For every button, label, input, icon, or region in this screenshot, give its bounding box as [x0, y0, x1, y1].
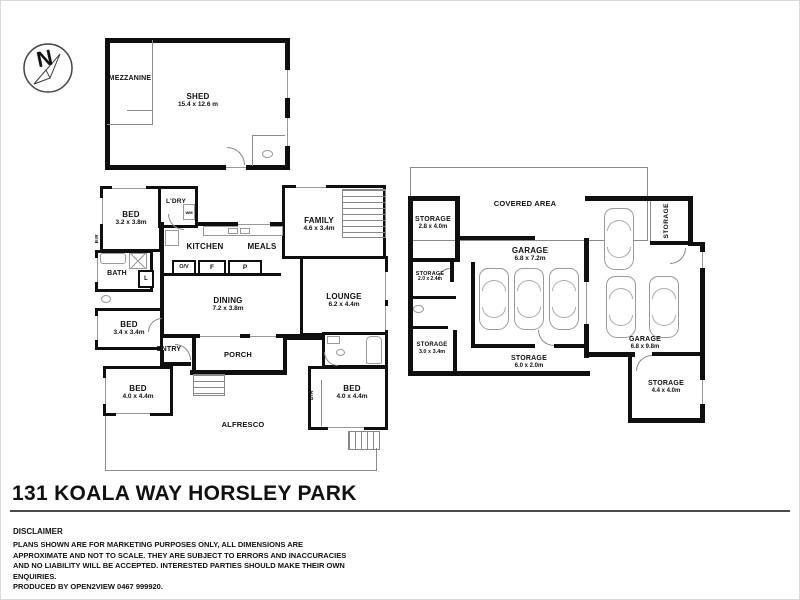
garage-label: GARAGE6.8 x 9.8m	[612, 336, 678, 351]
disclaimer-text: PLANS SHOWN ARE FOR MARKETING PURPOSES O…	[13, 540, 358, 582]
bedroom-label: BED4.0 x 4.4m	[322, 384, 382, 401]
car-icon	[479, 268, 509, 330]
window	[328, 425, 364, 430]
dining-label: DINING7.2 x 3.8m	[188, 296, 268, 313]
window	[383, 272, 388, 300]
toilet-icon	[262, 150, 273, 158]
porch-label: PORCH	[207, 351, 269, 360]
bathtub-icon	[100, 253, 126, 264]
washing-machine-icon: WM	[183, 204, 195, 220]
vanity-icon	[327, 336, 340, 344]
wall-segment	[628, 418, 705, 423]
wall-segment	[163, 362, 191, 366]
wall-segment	[408, 196, 460, 201]
disclaimer-heading: DISCLAIMER	[13, 527, 63, 536]
bedroom-label: BED3.4 x 3.4m	[99, 320, 159, 337]
shower-icon	[129, 253, 147, 269]
door-arc	[670, 248, 686, 264]
alfresco-line	[105, 416, 106, 471]
family-label: FAMILY4.6 x 3.4m	[286, 216, 352, 233]
bedroom-label: BED3.2 x 3.8m	[101, 210, 161, 227]
wall-segment	[471, 262, 475, 348]
alfresco-label: ALFRESCO	[203, 421, 283, 430]
wall-segment	[585, 196, 693, 201]
linen-closet: L	[138, 270, 154, 288]
garage-opening	[584, 282, 589, 324]
storage-label: STORAGE2.0 x 2.4m	[409, 271, 451, 283]
kitchen-label: KITCHEN	[180, 242, 230, 251]
car-icon	[606, 276, 636, 338]
produced-by-text: PRODUCED BY OPEN2VIEW 0467 999920.	[13, 582, 358, 593]
wall-segment	[408, 371, 590, 376]
mezzanine-step-line	[127, 110, 153, 111]
car-icon	[604, 208, 634, 270]
oven-box: O/V	[172, 260, 196, 275]
door-arc	[636, 355, 652, 371]
alfresco-line	[105, 470, 377, 471]
window	[238, 222, 270, 227]
covered-area-label: COVERED AREA	[478, 200, 572, 209]
car-icon	[514, 268, 544, 330]
stove-icon	[165, 230, 179, 246]
wall-segment	[455, 236, 535, 240]
sink-icon	[228, 228, 238, 234]
title-divider	[10, 510, 790, 512]
bathtub-icon	[366, 336, 382, 364]
storage-label: STORAGE2.8 x 4.0m	[410, 216, 456, 231]
floor-plan-canvas: N MEZZANINE SHED15.4 x 12.6 m ALFRESCO O	[0, 0, 800, 600]
wall-segment	[628, 352, 632, 423]
storage-label: STORAGE6.0 x 2.0m	[496, 355, 562, 370]
wall-segment	[554, 344, 587, 348]
disclaimer-body: PLANS SHOWN ARE FOR MARKETING PURPOSES O…	[13, 540, 358, 593]
lounge-label: LOUNGE6.2 x 4.4m	[308, 292, 380, 309]
window	[116, 411, 150, 416]
shed-window	[285, 118, 290, 146]
mezzanine-wall-line	[107, 124, 153, 125]
car-icon	[649, 276, 679, 338]
sink-icon	[240, 228, 250, 234]
toilet-icon	[101, 295, 111, 303]
property-title: 131 KOALA WAY HORSLEY PARK	[12, 482, 357, 506]
entry-label: ENTRY	[148, 346, 190, 354]
garage-label: GARAGE6.8 x 7.2m	[494, 246, 566, 263]
shed-door-opening	[226, 165, 246, 170]
wall-segment	[652, 352, 705, 356]
storage-wall-line	[650, 201, 651, 243]
storage-label: STORAGE4.4 x 4.0m	[633, 380, 699, 395]
window	[383, 306, 388, 330]
rear-steps	[348, 431, 380, 450]
wall-segment	[688, 196, 693, 245]
window	[296, 185, 326, 190]
shed-label: SHED15.4 x 12.6 m	[160, 92, 236, 109]
shed-wc-wall	[252, 135, 253, 166]
compass-n-label: N	[34, 44, 55, 72]
sliding-door-opening	[200, 334, 240, 339]
laundry-label: L'DRY	[156, 198, 196, 205]
wall-segment	[471, 344, 535, 348]
storage-label: STORAGE3.0 x 3.4m	[409, 342, 455, 355]
window	[700, 380, 705, 404]
bir-label: BIR	[94, 234, 99, 243]
compass-icon: N	[20, 40, 76, 96]
alfresco-line	[376, 448, 377, 471]
bir-label: BIR	[309, 390, 315, 400]
meals-label: MEALS	[240, 242, 284, 251]
window	[700, 252, 705, 268]
bath-label: BATH	[97, 270, 137, 278]
sliding-door-opening	[250, 334, 276, 339]
storage-label-vertical: STORAGE	[663, 203, 670, 239]
porch-steps	[193, 374, 225, 396]
wall-segment	[650, 241, 690, 245]
bedroom-label: BED4.0 x 4.4m	[107, 384, 169, 401]
mezzanine-label: MEZZANINE	[107, 75, 153, 83]
wall-segment	[283, 338, 287, 374]
shed-window	[285, 70, 290, 98]
wall-segment	[287, 336, 323, 340]
wall-segment	[408, 326, 448, 329]
wall-segment	[408, 296, 456, 299]
shed-wc-wall	[252, 135, 286, 136]
pantry-box: P	[228, 260, 262, 275]
door-arc	[538, 330, 554, 346]
window	[112, 186, 146, 191]
fridge-box: F	[198, 260, 226, 275]
toilet-icon	[413, 305, 424, 313]
wall-segment	[192, 338, 196, 374]
car-icon	[549, 268, 579, 330]
